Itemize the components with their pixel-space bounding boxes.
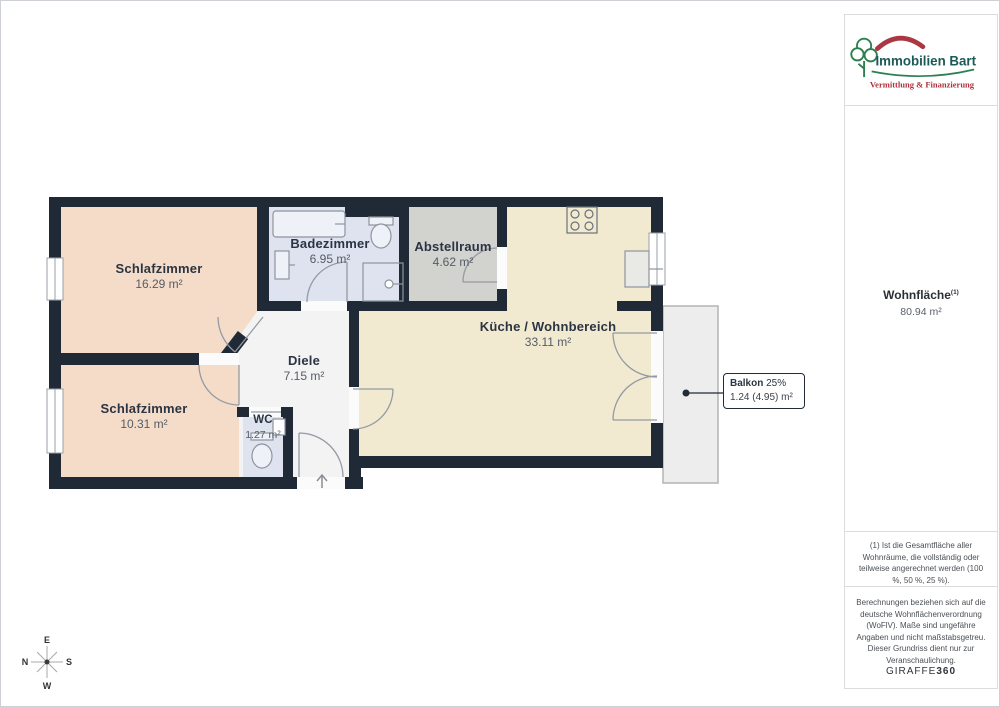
- label-schlafzimmer-1: Schlafzimmer 16.29 m²: [116, 261, 203, 291]
- footnote-text: (1) Ist die Gesamtfläche aller Wohnräume…: [845, 531, 997, 586]
- toilet-bath: [369, 217, 393, 248]
- living-area-section: Wohnfläche(1) 80.94 m²: [845, 106, 997, 531]
- label-diele: Diele 7.15 m²: [284, 353, 325, 383]
- compass-south-label: S: [66, 657, 72, 667]
- balcony-percent: 25%: [766, 378, 786, 389]
- living-area-label: Wohnfläche(1): [845, 288, 997, 302]
- balcony-area: 1.24 (4.95) m²: [730, 391, 798, 405]
- brand-name: Immobilien Bart: [875, 54, 976, 69]
- floorplan-page: E S W N Schlafzimmer 16.29 m² Schlafzimm…: [0, 0, 1000, 707]
- balcony-callout: Balkon 25% 1.24 (4.95) m²: [723, 373, 805, 409]
- living-area-value: 80.94 m²: [845, 306, 997, 318]
- window-bedroom-2: [47, 389, 63, 453]
- sidebar: Immobilien Bart Vermittlung & Finanzieru…: [844, 14, 998, 689]
- compass-center-dot: [45, 660, 50, 665]
- window-kitchen: [649, 233, 665, 285]
- label-schlafzimmer-2: Schlafzimmer 10.31 m²: [101, 401, 188, 431]
- compass-north-label: N: [22, 657, 29, 667]
- label-wc: WC 1.27 m²: [245, 414, 281, 441]
- giraffe360-watermark: GIRAFFE360: [845, 665, 997, 680]
- balcony-name: Balkon: [730, 378, 763, 389]
- living-area-footnote-ref: (1): [951, 289, 959, 296]
- brand-logo: Immobilien Bart Vermittlung & Finanzieru…: [845, 15, 997, 106]
- bathtub: [273, 211, 345, 237]
- roof-icon: [877, 38, 923, 48]
- disclaimer-section: Berechnungen beziehen sich auf die deuts…: [845, 586, 997, 688]
- brand-swoosh: [872, 69, 974, 76]
- brand-logo-svg: Immobilien Bart Vermittlung & Finanzieru…: [847, 21, 995, 99]
- label-abstellraum: Abstellraum 4.62 m²: [414, 239, 491, 269]
- window-bedroom-1: [47, 258, 63, 300]
- balcony: [663, 306, 718, 483]
- brand-tagline: Vermittlung & Finanzierung: [870, 80, 975, 90]
- label-badezimmer: Badezimmer 6.95 m²: [290, 236, 369, 266]
- compass-west-label: W: [43, 681, 52, 691]
- compass-east-label: E: [44, 635, 50, 645]
- compass-rose: E S W N: [22, 635, 72, 691]
- disclaimer-text: Berechnungen beziehen sich auf die deuts…: [856, 598, 985, 665]
- label-kueche: Küche / Wohnbereich 33.11 m²: [480, 319, 616, 349]
